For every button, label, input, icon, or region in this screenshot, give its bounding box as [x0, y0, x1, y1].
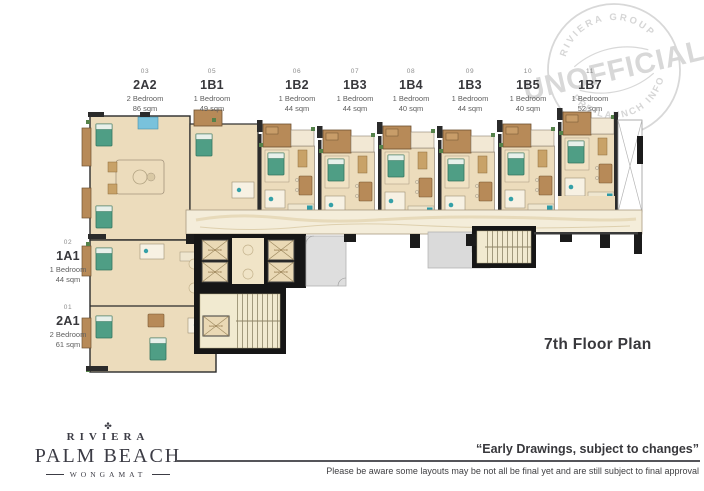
- wall-stubs: [186, 232, 642, 254]
- void-area: [618, 120, 643, 212]
- unit-type: 1 Bedroom: [38, 265, 98, 275]
- unit-number: 05: [182, 68, 242, 75]
- unit-code: 1B3: [325, 78, 385, 92]
- unit-code: 1B3: [440, 78, 500, 92]
- elevator-label: ELEVATOR: [209, 324, 223, 328]
- unit-code: 1B2: [267, 78, 327, 92]
- unit-type: 1 Bedroom: [325, 94, 385, 104]
- watermark-top-text: RIVIERA GROUP: [551, 2, 659, 60]
- unit-label-10: 10 1B5 1 Bedroom 40 sqm: [498, 68, 558, 113]
- unit-type: 1 Bedroom: [381, 94, 441, 104]
- unit-type: 1 Bedroom: [267, 94, 327, 104]
- unit-label-03: 03 2A2 2 Bedroom 86 sqm: [115, 68, 175, 113]
- wing-unit: [318, 130, 375, 226]
- unit-label-09: 09 1B3 1 Bedroom 44 sqm: [440, 68, 500, 113]
- unit-number: 01: [38, 304, 98, 311]
- unit-code: 1B1: [182, 78, 242, 92]
- unit-number: 07: [325, 68, 385, 75]
- unit-area: 44 sqm: [267, 104, 327, 114]
- unit-area: 40 sqm: [498, 104, 558, 114]
- logo-brand: RIVIERA: [24, 431, 192, 444]
- stair-core-2: [428, 226, 536, 268]
- unit-type: 2 Bedroom: [115, 94, 175, 104]
- brand-logo: ✤ RIVIERA PALM BEACH WONGAMAT: [24, 421, 192, 479]
- unit-label-08: 08 1B4 1 Bedroom 40 sqm: [381, 68, 441, 113]
- wing-unit: [438, 130, 495, 226]
- unit-number: 11: [560, 68, 620, 75]
- unit-type: 1 Bedroom: [440, 94, 500, 104]
- unit-code: 1B7: [560, 78, 620, 92]
- wing-unit: [378, 126, 435, 222]
- flyer-page: RIVIERA GROUP PRE-LAUNCH INFO UNOFFICIAL: [0, 0, 704, 491]
- unit-label-01: 01 2A1 2 Bedroom 61 sqm: [38, 304, 98, 349]
- stair-core-1: ELEVATOR: [194, 288, 286, 354]
- unit-number: 10: [498, 68, 558, 75]
- unit-number: 09: [440, 68, 500, 75]
- unit-number: 02: [38, 239, 98, 246]
- unit-area: 49 sqm: [182, 104, 242, 114]
- corridor: [186, 210, 642, 234]
- unit-type: 1 Bedroom: [182, 94, 242, 104]
- unit-area: 40 sqm: [381, 104, 441, 114]
- unit-type: 2 Bedroom: [38, 330, 98, 340]
- unit-number: 06: [267, 68, 327, 75]
- unit-label-05: 05 1B1 1 Bedroom 49 sqm: [182, 68, 242, 113]
- unit-area: 86 sqm: [115, 104, 175, 114]
- elevator-core: ELEVATOR ELEVATOR ELEVATOR ELEVATOR: [194, 234, 306, 288]
- unit-area: 44 sqm: [440, 104, 500, 114]
- unit-type: 1 Bedroom: [498, 94, 558, 104]
- unit-code: 1B5: [498, 78, 558, 92]
- logo-ornament-icon: ✤: [24, 421, 192, 431]
- left-block: [82, 112, 216, 372]
- logo-location: WONGAMAT: [24, 470, 192, 479]
- unit-label-11: 11 1B7 1 Bedroom 52 sqm: [560, 68, 620, 113]
- unit-code: 1B4: [381, 78, 441, 92]
- unit-1b1: [190, 110, 258, 212]
- wing-unit: [258, 124, 315, 220]
- unit-area: 44 sqm: [38, 275, 98, 285]
- unit-area: 61 sqm: [38, 340, 98, 350]
- footer-divider: [176, 460, 700, 462]
- wing-unit: [558, 112, 615, 208]
- unit-label-02: 02 1A1 1 Bedroom 44 sqm: [38, 239, 98, 284]
- footer-disclaimer: Please be aware some layouts may be not …: [326, 466, 699, 476]
- footer-quote: “Early Drawings, subject to changes”: [476, 442, 699, 456]
- unit-label-07: 07 1B3 1 Bedroom 44 sqm: [325, 68, 385, 113]
- unit-area: 44 sqm: [325, 104, 385, 114]
- elevator-label: ELEVATOR: [274, 270, 288, 274]
- wing-unit: [498, 124, 555, 220]
- wing-wall-caps: [257, 108, 618, 212]
- logo-name: PALM BEACH: [24, 445, 192, 467]
- unit-type: 1 Bedroom: [560, 94, 620, 104]
- unit-code: 2A2: [115, 78, 175, 92]
- lift-lobby: [306, 236, 346, 286]
- unit-label-06: 06 1B2 1 Bedroom 44 sqm: [267, 68, 327, 113]
- elevator-label: ELEVATOR: [208, 270, 222, 274]
- page-title: 7th Floor Plan: [544, 336, 652, 354]
- unit-number: 08: [381, 68, 441, 75]
- unit-code: 1A1: [38, 249, 98, 263]
- unit-number: 03: [115, 68, 175, 75]
- unit-area: 52 sqm: [560, 104, 620, 114]
- elevator-label: ELEVATOR: [208, 248, 222, 252]
- unit-code: 2A1: [38, 314, 98, 328]
- elevator-label: ELEVATOR: [274, 248, 288, 252]
